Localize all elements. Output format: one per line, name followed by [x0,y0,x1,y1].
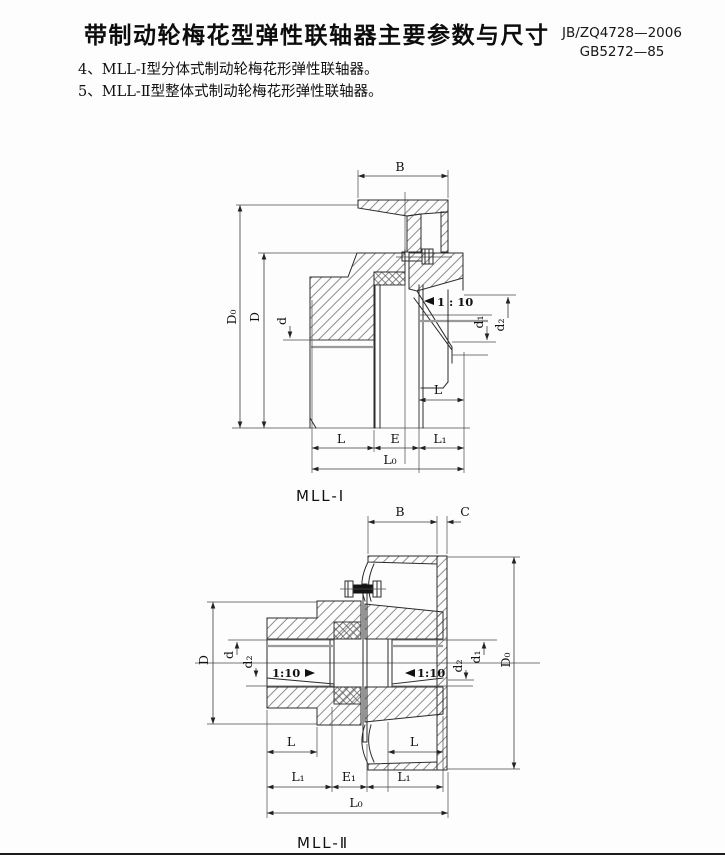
mll1-right-flange-section [409,253,463,291]
mll2-label-l-left: L [287,734,295,749]
mll2-label-d-major: D [196,655,211,665]
mll1-brake-wheel-side [441,212,448,252]
mll2-label-d2-left: d₂ [240,655,255,668]
technical-drawings: B D₀ D d d₁ d₂ 1 : 10 L [0,0,725,855]
figure-mll1: B D₀ D d d₁ d₂ 1 : 10 L [224,159,516,505]
mll2-elastomer-top [334,622,361,639]
mll1-label-d-major: D [247,312,262,322]
mll2-rim-right-face [437,556,447,770]
mll1-brake-wheel-rim [358,200,448,216]
mll2-label-d-bore: d [221,651,236,659]
mll2-right-hub-top [365,604,443,639]
mll2-taper-arrow-left-icon [305,669,315,677]
mll2-taper-arrow-right-icon [405,669,415,677]
mll1-left-hub-section [310,253,405,340]
mll1-label-d1: d₁ [471,315,486,328]
mll1-label-e: E [390,431,399,446]
mll2-label-l-right: L [410,734,418,749]
mll2-label-l0: L₀ [349,795,362,810]
mll1-label-l: L [337,431,345,446]
mll2-label-e1: E₁ [342,769,356,784]
mll2-label-l1-left: L₁ [291,769,304,784]
mll1-label-l1: L₁ [433,431,446,446]
mll2-label-d2-right: d₂ [450,659,465,672]
document-page: 带制动轮梅花型弹性联轴器主要参数与尺寸 JB/ZQ4728—2006 GB527… [0,0,725,855]
mll1-label-d-bore: d [274,317,289,325]
mll2-taper-label-left: 1:10 [272,666,300,680]
mll2-label-c: C [460,504,470,519]
mll2-label-d0: D₀ [498,652,513,667]
mll1-right-chamfer [443,382,448,388]
mll1-brake-wheel-web [407,214,421,252]
mll1-elastomer-spider [374,272,405,285]
mll2-rim-top [368,556,437,564]
mll2-taper-label-right: 1:10 [417,666,445,680]
mll2-caption: MLL-Ⅱ [297,834,349,852]
mll1-label-l0: L₀ [383,452,396,467]
mll1-label-d2: d₂ [492,318,507,331]
mll2-web-curve4 [369,725,374,762]
mll1-taper-label: 1 : 10 [437,295,473,309]
mll2-elastomer-bottom [334,687,361,704]
mll1-caption: MLL-Ⅰ [296,487,345,505]
mll1-label-l-inner: L [434,382,442,397]
mll1-label-b: B [395,159,404,174]
mll2-label-d1: d₁ [468,650,483,663]
mll2-label-l1-right: L₁ [397,769,410,784]
mll2-label-b: B [395,504,404,519]
figure-mll2: 1:10 1:10 B C D₀ D d d₂ [195,504,540,852]
mll2-right-hub-bottom [365,687,443,722]
mll1-label-d0: D₀ [224,309,239,324]
mll1-chamfer [310,418,316,428]
